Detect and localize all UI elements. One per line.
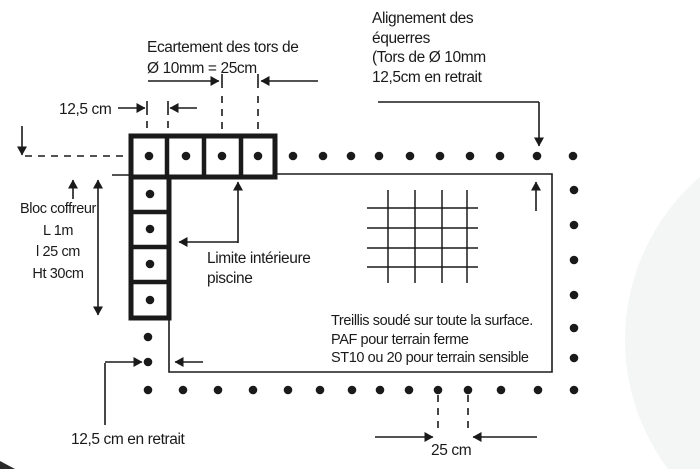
rebar-dot <box>284 386 293 395</box>
rebar-dot <box>570 291 579 300</box>
rebar-dot <box>145 152 154 161</box>
label-shuttering-block-line3: l 25 cm <box>8 242 108 264</box>
rebar-dot <box>464 386 473 395</box>
label-pool-inner-limit-line1: Limite intérieure <box>207 249 310 269</box>
rebar-dot <box>534 386 543 395</box>
rebar-dot <box>570 386 579 395</box>
label-tors-spacing-line1: Ecartement des tors de <box>147 37 298 58</box>
rebar-dot <box>406 152 415 161</box>
rebar-dot <box>434 386 443 395</box>
rebar-dot <box>570 186 579 195</box>
label-shuttering-block-line1: Bloc coffreur <box>8 199 108 221</box>
rebar-dot <box>569 152 578 161</box>
label-tors-spacing: Ecartement des tors de Ø 10mm = 25cm <box>147 37 298 79</box>
rebar-dot <box>570 354 579 363</box>
rebar-dot <box>249 386 258 395</box>
label-squares-alignment-line4: 12,5cm en retrait <box>372 68 486 88</box>
rebar-dot <box>254 152 263 161</box>
label-shuttering-block: Bloc coffreur L 1m l 25 cm Ht 30cm <box>8 199 108 285</box>
rebar-dot <box>316 386 325 395</box>
rebar-dot <box>436 152 445 161</box>
label-squares-alignment: Alignement des équerres (Tors de Ø 10mm … <box>372 9 486 87</box>
rebar-dot <box>405 386 414 395</box>
label-dimension-12-5cm: 12,5 cm <box>59 100 111 120</box>
label-squares-alignment-line3: (Tors de Ø 10mm <box>372 48 486 68</box>
rebar-dot <box>144 358 153 367</box>
rebar-dot <box>375 152 384 161</box>
label-shuttering-block-line4: Ht 30cm <box>8 264 108 286</box>
label-tors-spacing-line2: Ø 10mm = 25cm <box>147 58 298 79</box>
rebar-dot <box>319 152 328 161</box>
rebar-dot <box>146 190 155 199</box>
label-welded-mesh: Treillis soudé sur toute la surface. PAF… <box>331 312 533 368</box>
label-welded-mesh-line2: PAF pour terrain ferme <box>331 331 533 350</box>
pool-construction-diagram-page: Ecartement des tors de Ø 10mm = 25cm Ali… <box>0 0 700 469</box>
rebar-dot <box>144 386 153 395</box>
rebar-dot <box>496 152 505 161</box>
page-corner-artifact <box>0 461 15 469</box>
label-pool-inner-limit-line2: piscine <box>207 269 310 289</box>
rebar-dot <box>497 386 506 395</box>
label-welded-mesh-line3: ST10 ou 20 pour terrain sensible <box>331 349 533 368</box>
rebar-dot <box>570 324 579 333</box>
rebar-dot <box>144 333 153 342</box>
rebar-dot <box>533 152 542 161</box>
label-squares-alignment-line2: équerres <box>372 29 486 49</box>
rebar-dot <box>146 260 155 269</box>
rebar-dot <box>179 386 188 395</box>
rebar-dot <box>146 296 155 305</box>
rebar-dot <box>466 152 475 161</box>
rebar-dot <box>570 256 579 265</box>
rebar-dot <box>146 225 155 234</box>
rebar-dot <box>218 152 227 161</box>
rebar-dot <box>348 386 357 395</box>
rebar-dot <box>289 152 298 161</box>
label-welded-mesh-line1: Treillis soudé sur toute la surface. <box>331 312 533 331</box>
label-shuttering-block-line2: L 1m <box>8 221 108 243</box>
label-squares-alignment-line1: Alignement des <box>372 9 486 29</box>
rebar-dot <box>347 152 356 161</box>
label-setback-12-5cm: 12,5 cm en retrait <box>71 430 184 450</box>
welded-mesh-grid <box>367 190 478 283</box>
label-pool-inner-limit: Limite intérieure piscine <box>207 249 310 289</box>
label-dimension-25cm: 25 cm <box>431 441 471 461</box>
rebar-dot <box>182 152 191 161</box>
rebar-dot <box>570 221 579 230</box>
rebar-dot <box>376 386 385 395</box>
rebar-dot <box>214 386 223 395</box>
